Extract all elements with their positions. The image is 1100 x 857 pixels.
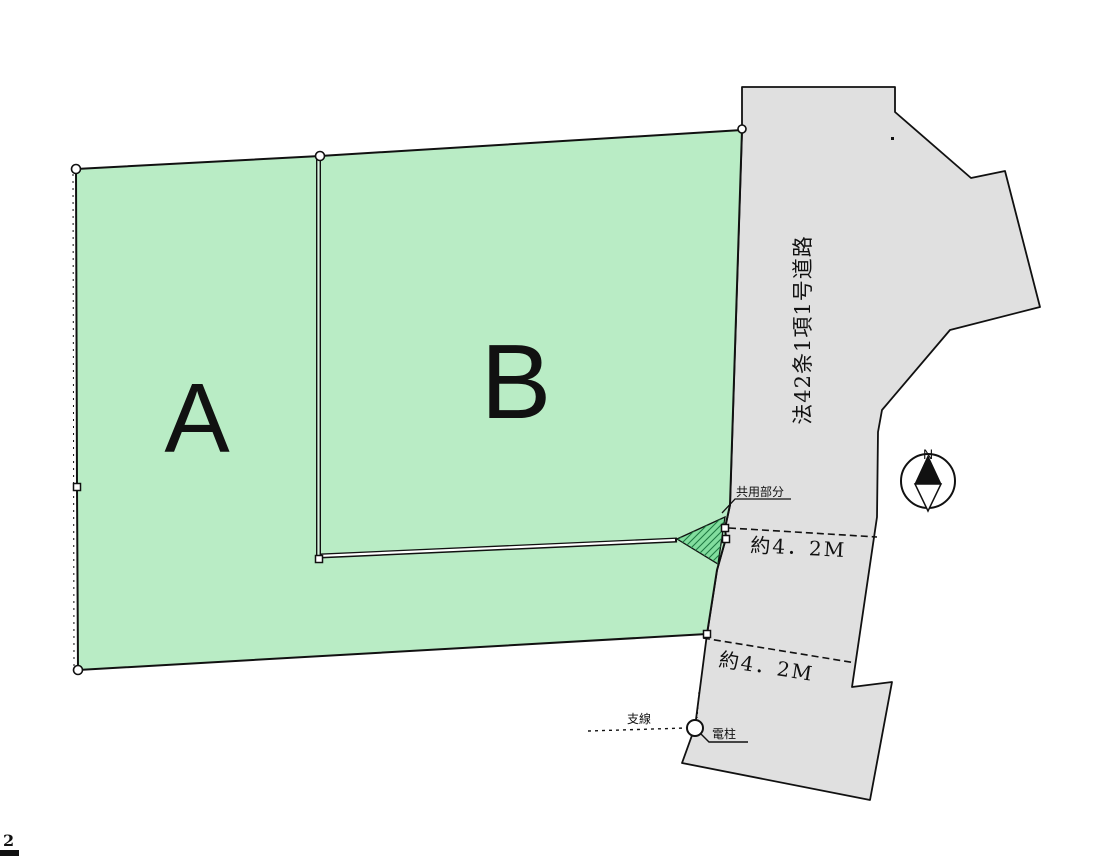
vertex-marker-road-upper <box>722 525 729 532</box>
guy-wire-dashline <box>588 728 686 731</box>
parcel-a-label: A <box>164 363 230 473</box>
vertex-marker-west-mid <box>74 484 81 491</box>
vertex-marker-nw <box>72 165 81 174</box>
stray-dot <box>891 137 894 140</box>
vertex-marker-sw <box>74 666 83 675</box>
page-number-bar <box>0 850 19 856</box>
site-plan-drawing: A B 法42条1項1号道路 約4．2M 約4．2M 共用部分 支線 電柱 N … <box>0 0 1100 857</box>
west-boundary-ticks <box>73 174 74 666</box>
page-number: 2 <box>3 831 14 850</box>
vertex-marker-ne <box>738 125 746 133</box>
site-plan-canvas: A B 法42条1項1号道路 約4．2M 約4．2M 共用部分 支線 電柱 N … <box>0 0 1100 857</box>
shared-area-label: 共用部分 <box>736 484 784 499</box>
compass-north-label: N <box>923 446 933 462</box>
road-width-upper-label: 約4．2M <box>750 533 847 562</box>
vertex-marker-top-mid <box>316 152 325 161</box>
parcel-b-label: B <box>481 323 552 441</box>
compass: N <box>901 446 955 511</box>
road-name-label: 法42条1項1号道路 <box>791 235 815 424</box>
vertex-marker-road-lower <box>704 631 711 638</box>
utility-pole-label: 電柱 <box>712 726 736 741</box>
guy-wire-label: 支線 <box>627 711 651 726</box>
vertex-marker-road-upper2 <box>723 536 730 543</box>
vertex-marker-b-sw <box>316 556 323 563</box>
